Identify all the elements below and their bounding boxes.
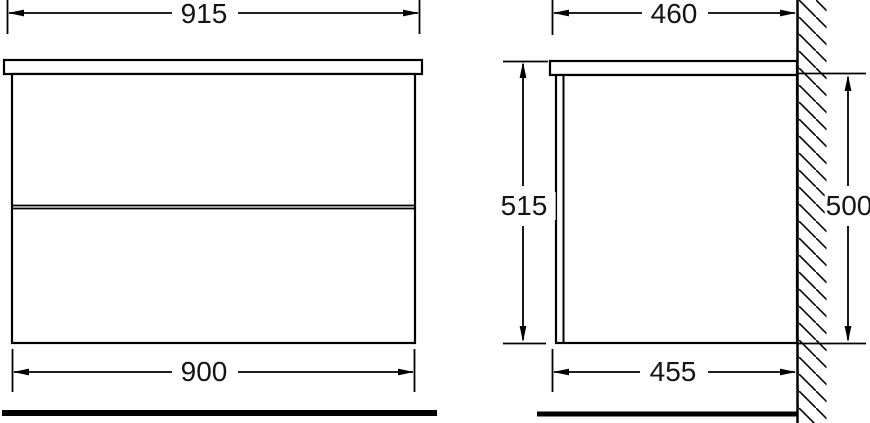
side-bottom-dim-arrow-right [780,369,796,376]
dim-label-side-top-depth: 460 [643,0,706,28]
dim-label-side-overall-height: 515 [493,192,556,220]
front-bottom-dim-arrow-left [13,369,29,376]
front-top-dim-arrow-left [8,10,24,17]
side-countertop [550,61,797,75]
front-top-dim-arrow-right [403,10,419,17]
front-countertop [4,60,422,74]
side-top-dim-arrow-left [553,10,569,17]
dim-label-front-cabinet-width: 900 [173,358,236,386]
side-height-dim-arrow-up [520,62,527,78]
side-cabinet-body [556,75,797,343]
side-cabinet-height-arrow-up [845,75,852,91]
front-view [2,0,437,413]
vanity-technical-drawing: 915 900 460 515 500 455 [0,0,870,423]
dim-label-side-cabinet-depth: 455 [642,358,705,386]
side-cabinet-height-arrow-down [845,326,852,342]
dim-label-side-cabinet-height: 500 [825,192,870,220]
side-height-dim-arrow-down [520,326,527,342]
wall [798,0,827,423]
side-top-dim-arrow-right [780,10,796,17]
front-bottom-dim-arrow-right [398,369,414,376]
dim-label-front-top-width: 915 [173,0,236,28]
wall-hatching [799,0,827,423]
side-bottom-dim-arrow-left [553,369,569,376]
drawing-linework [0,0,870,423]
